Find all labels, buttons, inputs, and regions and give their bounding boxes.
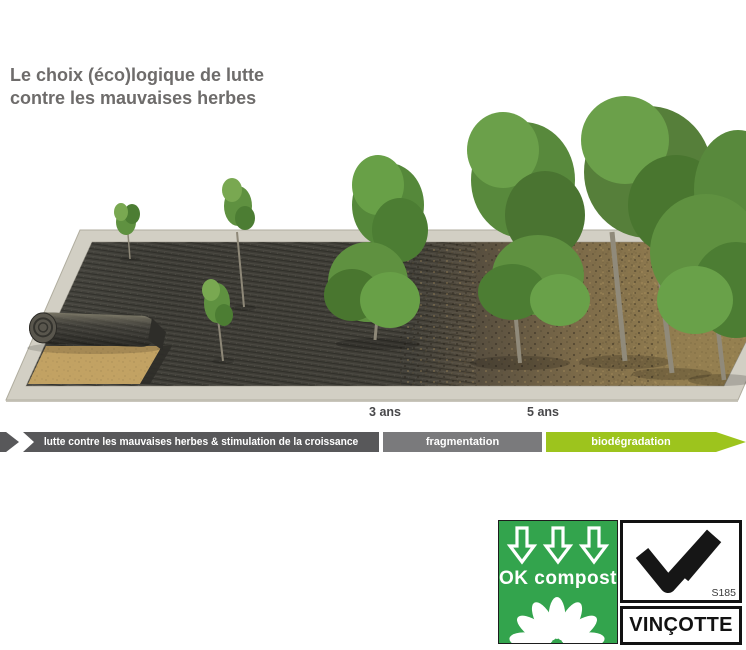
timeline-segment-biodegradation: biodégradation <box>546 432 746 452</box>
infographic-page: Le choix (éco)logique de lutte contre le… <box>0 0 746 650</box>
down-arrows-icon <box>499 525 617 569</box>
vincotte-brand: VINÇOTTE <box>620 606 742 645</box>
page-title: Le choix (éco)logique de lutte contre le… <box>10 64 264 109</box>
ok-compost-logo: OK compost <box>498 520 618 644</box>
title-line-1: Le choix (éco)logique de lutte <box>10 64 264 87</box>
certificate-number: S185 <box>711 587 736 599</box>
vincotte-mark-box: S185 <box>620 520 742 603</box>
title-line-2: contre les mauvaises herbes <box>10 87 264 110</box>
timeline-start-chevron-icon <box>0 432 19 452</box>
segment-label: lutte contre les mauvaises herbes & stim… <box>44 436 358 448</box>
timeline-segment-weed-control: lutte contre les mauvaises herbes & stim… <box>23 432 379 452</box>
timeline-label-5-years: 5 ans <box>527 405 559 419</box>
ok-compost-label: OK compost <box>499 568 617 590</box>
timeline-segment-fragmentation: fragmentation <box>383 432 542 452</box>
segment-label: fragmentation <box>426 436 499 448</box>
timeline-bar: lutte contre les mauvaises herbes & stim… <box>0 432 746 452</box>
timeline-label-3-years: 3 ans <box>369 405 401 419</box>
mat-roll <box>27 312 166 354</box>
segment-label: biodégradation <box>591 436 670 448</box>
daisy-flower-icon <box>499 591 617 644</box>
